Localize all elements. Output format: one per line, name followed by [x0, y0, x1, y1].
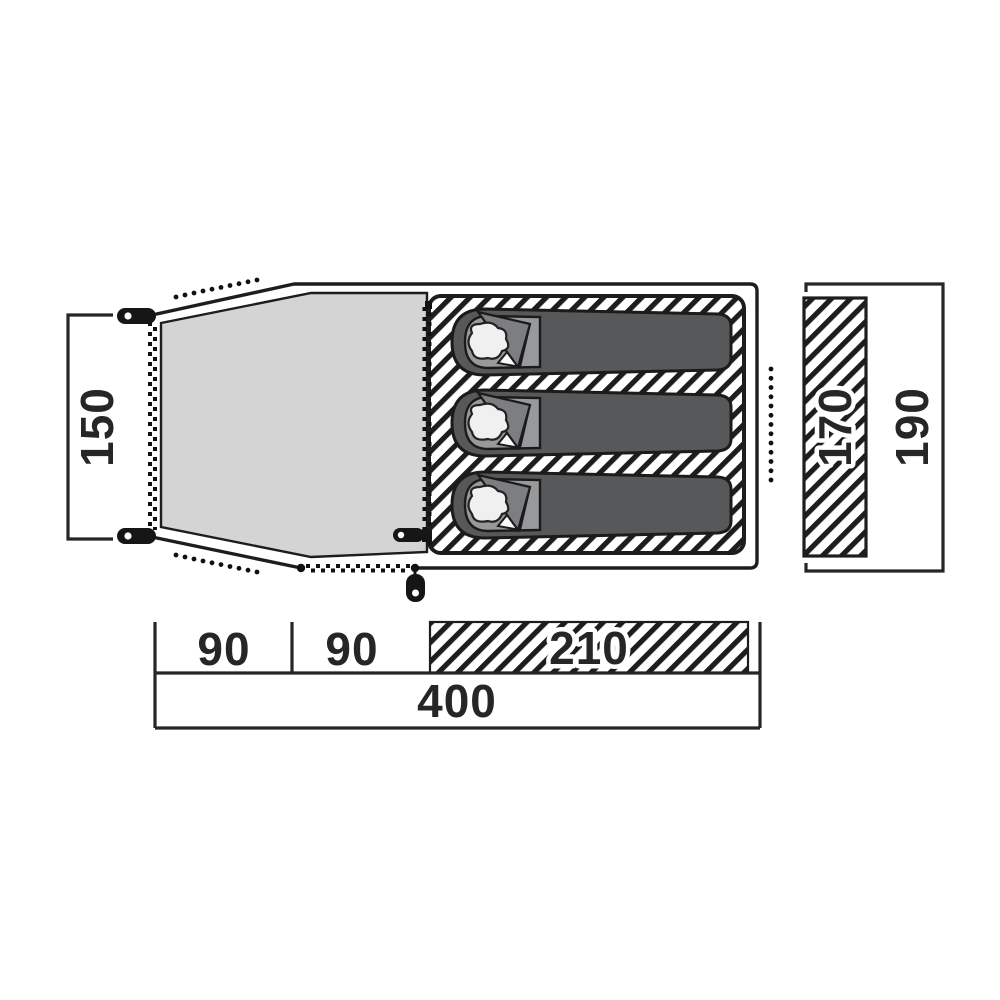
dimension-length-scale: 90 90 210 400	[155, 622, 760, 728]
zipper-pull-icon	[393, 528, 432, 542]
dimension-label-170: 170	[809, 387, 861, 467]
sleeping-bag-1	[452, 309, 731, 375]
dimension-label-210: 210	[549, 622, 629, 674]
dimension-label-90-2: 90	[325, 623, 378, 675]
front-door-zipper	[150, 322, 155, 530]
dimension-inner-width: 170	[804, 298, 866, 556]
tent-peg-icon-bottom	[117, 528, 156, 544]
sleeping-bag-3	[452, 472, 731, 538]
tent-floorplan-diagram: 150 170 190 90 90 210 400	[0, 0, 1000, 1000]
tent-peg-icon-top	[117, 308, 156, 324]
dimension-label-90-1: 90	[197, 623, 250, 675]
guy-line-dots-right	[769, 367, 774, 483]
guy-line-dots-top	[174, 278, 260, 300]
dimension-label-190: 190	[886, 387, 938, 467]
zipper-end-dot-left	[297, 564, 305, 572]
floorplan-svg: 150 170 190 90 90 210 400	[0, 0, 1000, 1000]
inner-zipper-end	[425, 301, 432, 309]
zipper-pull-tag-icon	[406, 568, 425, 602]
dimension-vestibule-width: 150	[68, 315, 123, 539]
flysheet-bottom-zipper	[306, 566, 411, 571]
dimension-label-150: 150	[71, 387, 123, 467]
sleeping-bag-2	[452, 390, 731, 456]
dimension-label-400: 400	[417, 675, 497, 727]
vestibule-floor	[161, 293, 427, 557]
